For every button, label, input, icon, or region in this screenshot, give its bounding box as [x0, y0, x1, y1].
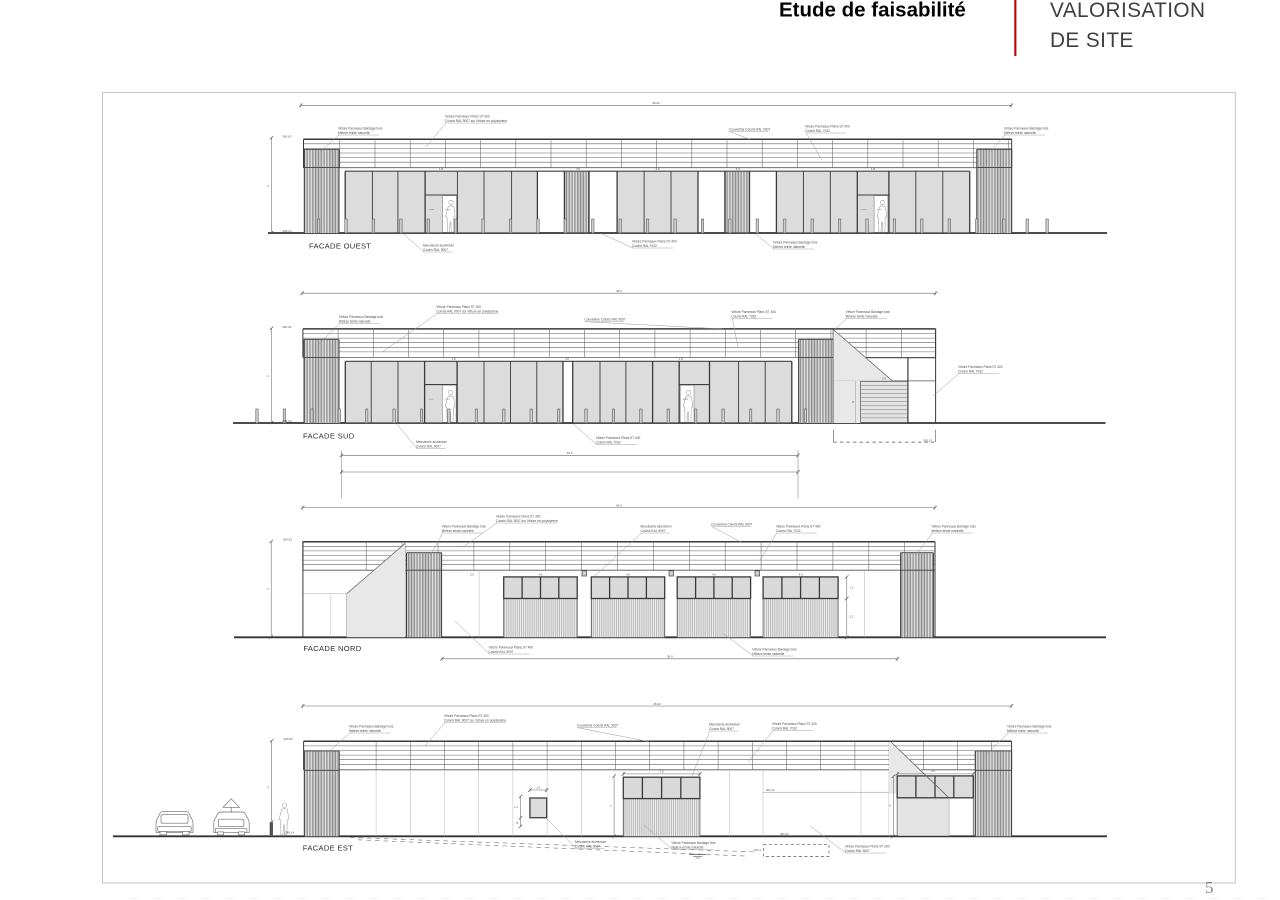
svg-text:FACADE OUEST: FACADE OUEST: [309, 242, 371, 251]
svg-text:Coloris RAL 7032: Coloris RAL 7032: [776, 529, 801, 533]
svg-text:Mélèze teinte naturelle: Mélèze teinte naturelle: [846, 314, 878, 318]
svg-text:4.6: 4.6: [626, 572, 630, 576]
svg-text:Mélèze teinte naturelle: Mélèze teinte naturelle: [442, 529, 474, 533]
svg-text:300.12: 300.12: [766, 788, 775, 792]
svg-text:Coloris RAL 7032: Coloris RAL 7032: [805, 129, 830, 133]
svg-text:VALORISATION: VALORISATION: [1050, 0, 1205, 22]
svg-text:4.6: 4.6: [736, 167, 740, 171]
svg-text:46.0: 46.0: [616, 503, 622, 507]
svg-text:Coloris RAL 7032: Coloris RAL 7032: [731, 314, 756, 318]
svg-text:Mélèze teinte naturelle: Mélèze teinte naturelle: [752, 652, 784, 656]
svg-text:Coloris RAL 7032: Coloris RAL 7032: [632, 244, 657, 248]
svg-text:1.1: 1.1: [514, 805, 518, 809]
svg-text:Coloris RAL 9007: Coloris RAL 9007: [575, 844, 600, 848]
svg-text:7.0: 7.0: [660, 770, 665, 774]
svg-text:1.8: 1.8: [871, 167, 875, 171]
svg-text:300.62: 300.62: [284, 737, 294, 741]
svg-text:4.6: 4.6: [576, 167, 580, 171]
svg-text:Coloris RAL 7032: Coloris RAL 7032: [958, 369, 983, 373]
svg-text:Mélèze teinte naturelle: Mélèze teinte naturelle: [1004, 131, 1036, 135]
svg-text:1.2: 1.2: [850, 586, 854, 590]
svg-text:Coloris RAL 9007 sur Vêture en: Coloris RAL 9007 sur Vêture en polystyrè…: [436, 309, 498, 313]
svg-text:2.2: 2.2: [850, 615, 854, 619]
svg-text:FACADE SUD: FACADE SUD: [303, 432, 355, 441]
svg-text:38.0: 38.0: [667, 655, 673, 659]
svg-text:Coloris RAL 7032: Coloris RAL 7032: [596, 440, 621, 444]
svg-text:Coloris RAL 9007: Coloris RAL 9007: [416, 444, 441, 448]
svg-text:48.0: 48.0: [616, 289, 622, 293]
svg-text:300.62: 300.62: [282, 135, 292, 139]
svg-text:Mélèze teinte naturelle: Mélèze teinte naturelle: [339, 319, 371, 323]
svg-text:FACADE EST: FACADE EST: [303, 844, 353, 853]
svg-text:1.8: 1.8: [451, 357, 455, 361]
svg-text:300.62: 300.62: [282, 325, 292, 329]
svg-text:Mélèze teinte naturelle: Mélèze teinte naturelle: [671, 845, 703, 849]
svg-text:46.0: 46.0: [567, 451, 573, 455]
svg-text:Coloris RAL 9007 sur Vêture en: Coloris RAL 9007 sur Vêture en polystyrè…: [444, 718, 506, 722]
svg-text:2.0: 2.0: [470, 572, 474, 576]
svg-text:1.8: 1.8: [439, 167, 443, 171]
svg-text:Coloris RAL 9007: Coloris RAL 9007: [641, 529, 666, 533]
svg-text:Couvertine Coloris RAL 9007: Couvertine Coloris RAL 9007: [729, 128, 770, 132]
svg-text:46.02: 46.02: [652, 101, 660, 105]
svg-text:1.8: 1.8: [679, 357, 683, 361]
svg-text:FACADE NORD: FACADE NORD: [303, 644, 361, 653]
svg-text:1.0: 1.0: [536, 786, 540, 790]
svg-text:Mélèze teinte naturelle: Mélèze teinte naturelle: [338, 131, 370, 135]
svg-text:4.6: 4.6: [799, 572, 803, 576]
svg-text:Mélèze teinte naturelle: Mélèze teinte naturelle: [932, 529, 964, 533]
svg-text:Couvertine Coloris RAL 9007: Couvertine Coloris RAL 9007: [584, 318, 625, 322]
svg-text:Coloris RAL 7032: Coloris RAL 7032: [772, 726, 797, 730]
svg-text:4.6: 4.6: [565, 357, 569, 361]
svg-text:Coloris RAL 9007 sur Vêture en: Coloris RAL 9007 sur Vêture en polystyrè…: [445, 119, 507, 123]
svg-text:299.14: 299.14: [282, 419, 292, 423]
svg-text:2.6: 2.6: [882, 376, 886, 380]
svg-text:Etude de faisabilité: Etude de faisabilité: [779, 0, 966, 21]
svg-text:300.62: 300.62: [283, 538, 293, 542]
svg-text:299.14: 299.14: [285, 831, 295, 835]
svg-text:300.1: 300.1: [754, 848, 762, 852]
svg-text:4.6: 4.6: [712, 572, 716, 576]
svg-text:Coloris RAL 9007: Coloris RAL 9007: [423, 248, 448, 252]
svg-text:300.12: 300.12: [923, 438, 932, 442]
svg-text:2.6: 2.6: [931, 769, 935, 773]
svg-text:Couvertine Coloris RAL 9007: Couvertine Coloris RAL 9007: [711, 523, 752, 527]
svg-text:299.14: 299.14: [282, 229, 292, 233]
svg-text:5: 5: [1205, 878, 1214, 897]
svg-text:Coloris RAL 9007: Coloris RAL 9007: [709, 727, 734, 731]
svg-text:4.6: 4.6: [656, 167, 660, 171]
svg-text:Mélèze teinte naturelle: Mélèze teinte naturelle: [1007, 729, 1039, 733]
svg-text:Coloris RAL 9007 sur Vêture en: Coloris RAL 9007 sur Vêture en polystyrè…: [496, 519, 558, 523]
svg-text:Couvertine Coloris RAL 9007: Couvertine Coloris RAL 9007: [577, 724, 618, 728]
svg-text:4.6: 4.6: [538, 572, 542, 576]
svg-text:46.02: 46.02: [653, 702, 661, 706]
svg-text:Coloris RAL 9007: Coloris RAL 9007: [845, 849, 870, 853]
svg-text:Coloris RAL 9007: Coloris RAL 9007: [489, 650, 514, 654]
svg-text:Mélèze teinte naturelle: Mélèze teinte naturelle: [349, 729, 381, 733]
svg-text:300.12: 300.12: [780, 832, 789, 836]
svg-text:Mélèze teinte naturelle: Mélèze teinte naturelle: [773, 245, 805, 249]
svg-text:DE SITE: DE SITE: [1050, 29, 1134, 52]
